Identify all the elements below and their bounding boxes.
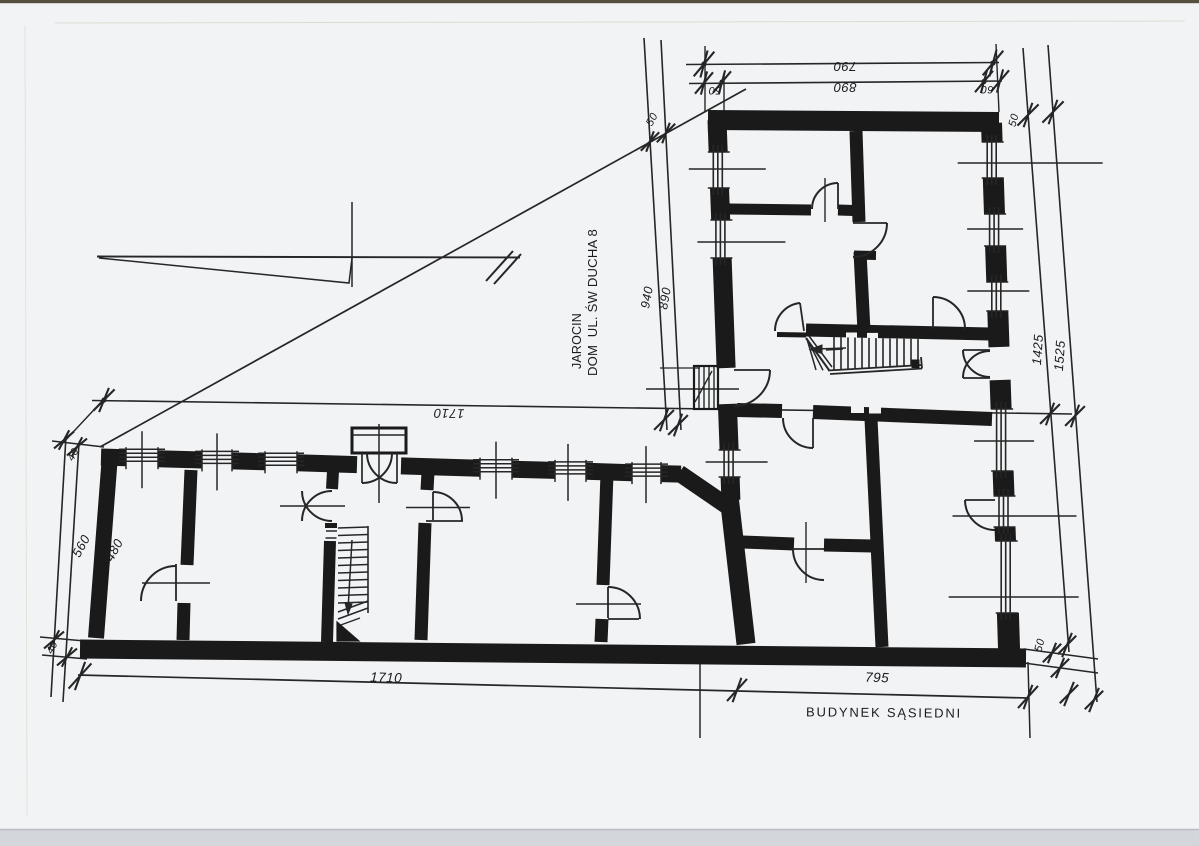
svg-text:890: 890	[833, 80, 856, 95]
svg-text:1425: 1425	[1029, 333, 1046, 365]
svg-text:60: 60	[980, 83, 994, 95]
svg-text:1710: 1710	[370, 669, 403, 685]
svg-text:790: 790	[833, 59, 856, 74]
svg-text:1525: 1525	[1051, 339, 1068, 371]
svg-text:1710: 1710	[433, 406, 464, 422]
svg-text:BUDYNEK SĄSIEDNI: BUDYNEK SĄSIEDNI	[806, 704, 962, 720]
svg-text:50: 50	[708, 84, 722, 96]
svg-text:795: 795	[865, 670, 890, 686]
svg-text:JAROCIN: JAROCIN	[569, 313, 584, 369]
svg-text:DOM UL. ŚW DUCHA 8: DOM UL. ŚW DUCHA 8	[585, 229, 600, 376]
